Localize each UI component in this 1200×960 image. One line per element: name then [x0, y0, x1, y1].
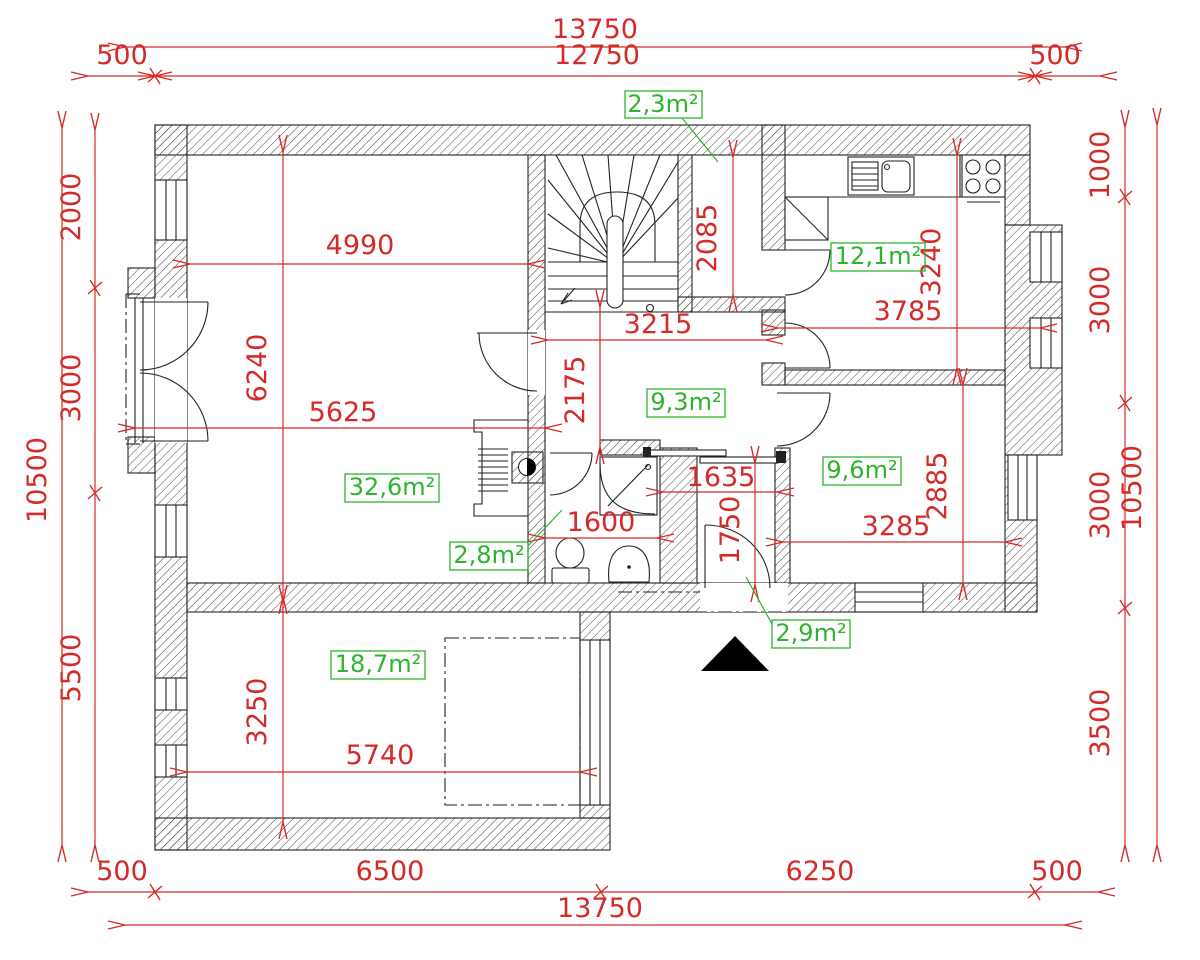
floor-plan-drawing: 13750 500 12750 500 10500 2000 3000 5500… — [0, 0, 1200, 960]
window-right-kitchen-2 — [1030, 318, 1062, 368]
dim-bottom-seg-4: 500 — [1031, 856, 1083, 887]
stove-icon — [962, 155, 1005, 202]
kitchen-door-1 — [785, 250, 830, 295]
bedroom-door — [777, 393, 830, 446]
stairs — [545, 155, 678, 312]
window-right-kitchen-1 — [1030, 232, 1062, 282]
wall-stairs-east — [678, 155, 692, 312]
living-door-opening — [528, 330, 545, 395]
kitchen-door-2 — [785, 323, 830, 368]
chimney-flue-icon — [512, 452, 543, 483]
stairs-newel — [607, 216, 623, 308]
dim-closet-height: 2085 — [692, 204, 723, 273]
window-bottom-room-east — [580, 640, 610, 805]
floor-plan-canvas: 13750 500 12750 500 10500 2000 3000 5500… — [0, 0, 1200, 960]
dim-kitchen-width: 3785 — [874, 296, 943, 327]
toilet-icon — [552, 538, 589, 583]
dim-right-seg-4: 3500 — [1085, 689, 1116, 758]
wall-bottom-room-south — [155, 818, 610, 850]
area-bathroom: 2,8m² — [453, 541, 524, 569]
wall-kitchen-bedroom — [785, 370, 1005, 385]
dim-hall-height: 2175 — [560, 356, 591, 425]
area-bottom-room: 18,7m² — [335, 650, 421, 678]
dim-bottom-seg-1: 500 — [96, 856, 148, 887]
area-closet: 2,3m² — [627, 90, 698, 118]
dim-left-seg-1: 2000 — [56, 173, 87, 242]
dim-top-overhang-right: 500 — [1029, 40, 1081, 71]
wall-kitchen-west — [762, 125, 785, 250]
wall-top-right — [1005, 155, 1030, 225]
stairs-direction-arrow — [561, 288, 575, 304]
wall-top — [155, 125, 1030, 155]
ceiling-opening-outline — [445, 638, 580, 805]
area-hall: 9,3m² — [650, 388, 721, 416]
dim-bottom-room-width: 5740 — [346, 740, 415, 771]
kitchen-cabinet-icon — [785, 197, 828, 240]
area-bedroom: 9,6m² — [826, 456, 897, 484]
wall-pilaster-left-2 — [128, 437, 155, 473]
dim-bottom-room-height: 3250 — [242, 678, 273, 747]
dim-bath-width: 1600 — [567, 507, 636, 538]
dim-right-seg-1: 1000 — [1085, 131, 1116, 200]
window-left-2 — [155, 505, 187, 557]
entrance-opening — [700, 583, 788, 612]
dim-left-seg-2: 3000 — [56, 354, 87, 423]
dim-living-width: 5625 — [309, 397, 378, 428]
window-bedroom-south — [855, 583, 923, 612]
wall-kitchen-pier-2 — [762, 363, 785, 385]
window-left-4 — [155, 745, 187, 777]
dim-living-width-top: 4990 — [326, 230, 395, 261]
dim-living-height: 6240 — [242, 334, 273, 403]
bathroom-door — [550, 453, 592, 495]
window-right-bedroom — [1008, 455, 1037, 520]
washbasin-icon — [609, 546, 650, 582]
dim-top-overhang-left: 500 — [96, 40, 148, 71]
dim-right-seg-2: 3000 — [1085, 266, 1116, 335]
area-vestibule: 2,9m² — [775, 619, 846, 647]
dim-left-seg-3: 5500 — [56, 634, 87, 703]
dim-left-total: 10500 — [22, 437, 53, 523]
dim-bottom-seg-3: 6250 — [786, 856, 855, 887]
wall-closet-south — [678, 297, 785, 312]
area-kitchen: 12,1m² — [835, 242, 921, 270]
entrance-arrow-icon — [701, 636, 769, 671]
dim-bottom-seg-2: 6500 — [356, 856, 425, 887]
dim-right-seg-3: 3000 — [1085, 471, 1116, 540]
dim-hall-width: 3215 — [624, 309, 693, 340]
wall-kitchen-pier-1 — [762, 310, 785, 335]
dim-bedroom-width: 3285 — [862, 511, 931, 542]
window-left-3 — [155, 678, 187, 710]
dim-right-total: 10500 — [1117, 445, 1148, 531]
area-living: 32,6m² — [349, 473, 435, 501]
dim-vestibule-height: 1750 — [715, 496, 746, 565]
kitchen-fixtures — [785, 155, 1005, 240]
dim-top-inner: 12750 — [554, 40, 640, 71]
dim-vestibule-width: 1635 — [687, 462, 756, 493]
dim-bottom-total: 13750 — [557, 893, 643, 924]
kitchen-sink-icon — [848, 157, 914, 195]
wall-vestibule-east — [775, 448, 790, 583]
window-left-1 — [155, 180, 187, 240]
